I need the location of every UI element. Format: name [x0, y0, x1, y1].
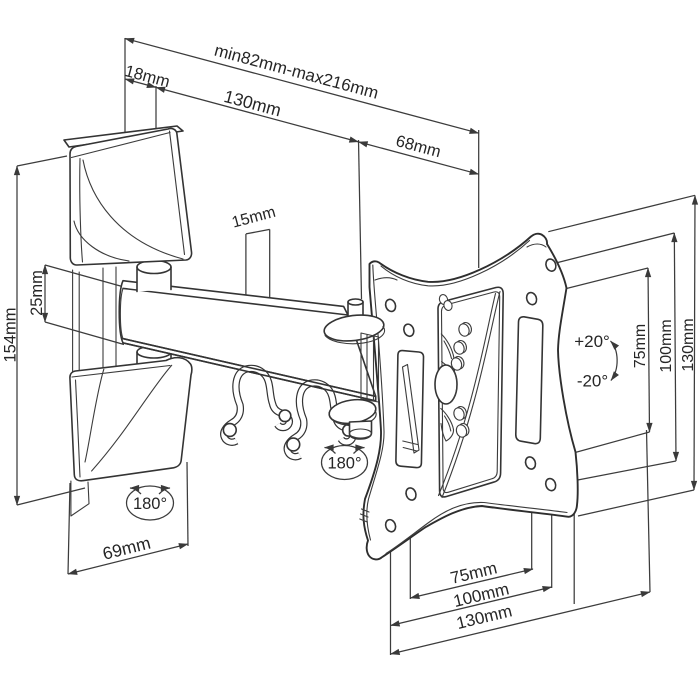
- svg-text:100mm: 100mm: [658, 319, 675, 372]
- svg-text:180°: 180°: [327, 455, 361, 473]
- svg-text:25mm: 25mm: [28, 270, 46, 316]
- svg-text:130mm: 130mm: [680, 318, 697, 371]
- svg-text:+20°: +20°: [574, 332, 610, 351]
- svg-text:75mm: 75mm: [632, 324, 649, 368]
- svg-text:180°: 180°: [133, 495, 167, 513]
- svg-text:-20°: -20°: [577, 372, 608, 391]
- svg-text:154mm: 154mm: [2, 307, 20, 362]
